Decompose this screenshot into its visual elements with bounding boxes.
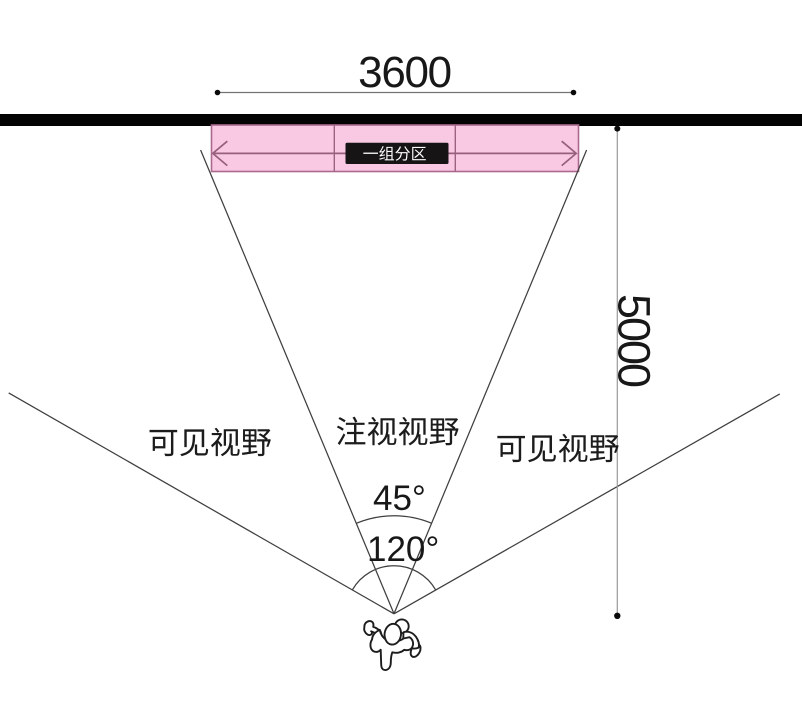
svg-text:120°: 120° bbox=[367, 530, 439, 569]
svg-text:3600: 3600 bbox=[358, 48, 451, 97]
svg-text:5000: 5000 bbox=[609, 294, 660, 387]
svg-text:45°: 45° bbox=[373, 479, 426, 518]
